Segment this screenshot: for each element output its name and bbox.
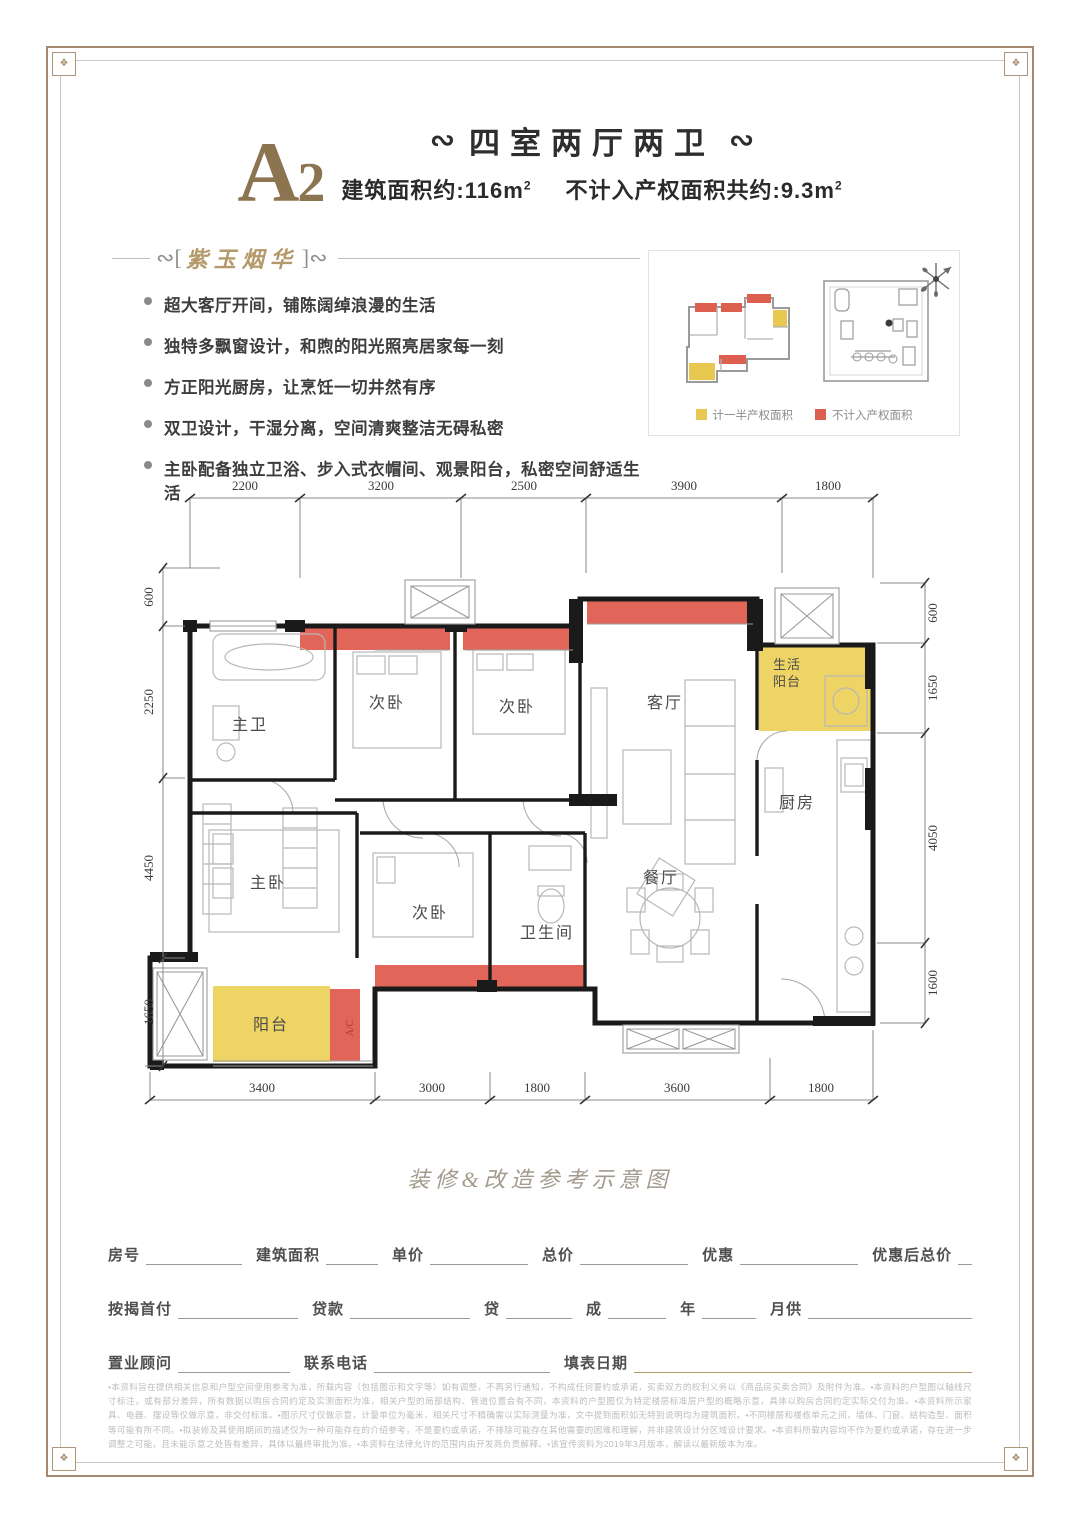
- fill-line: [580, 1249, 688, 1265]
- feature-item: 超大客厅开间，铺陈阔绰浪漫的生活: [164, 292, 640, 316]
- svg-text:3400: 3400: [249, 1080, 275, 1095]
- svg-text:卫生间: 卫生间: [520, 924, 574, 942]
- area-info: 建筑面积约:116m2不计入产权面积共约:9.3m2: [341, 173, 842, 205]
- fill-line: [740, 1249, 858, 1265]
- compass-icon: [917, 259, 955, 299]
- svg-text:次卧: 次卧: [412, 904, 448, 922]
- svg-text:1650: 1650: [141, 999, 156, 1025]
- field-label: 贷款: [312, 1298, 344, 1319]
- field-label: 填表日期: [564, 1352, 628, 1373]
- svg-text:3200: 3200: [368, 478, 394, 493]
- svg-text:1800: 1800: [808, 1080, 834, 1095]
- svg-text:600: 600: [141, 587, 156, 607]
- fill-line: [146, 1249, 242, 1265]
- page-title: ∾ 四室两厅两卫 ∾: [430, 118, 754, 163]
- fill-line: [374, 1357, 550, 1373]
- svg-text:次卧: 次卧: [369, 694, 405, 712]
- field-label: 优惠后总价: [872, 1244, 952, 1265]
- fill-line: [958, 1249, 972, 1265]
- field-label: 建筑面积: [256, 1244, 320, 1265]
- flyer-page: ❖ ❖ ❖ ❖ A2 ∾ 四室两厅两卫 ∾ 建筑面积约:116m2不计入产权面积…: [0, 0, 1080, 1523]
- legend-item-excluded-area: 不计入产权面积: [815, 407, 913, 423]
- features-header: ∾[ 紫玉烟华 ]∾: [112, 242, 640, 274]
- svg-text:客厅: 客厅: [647, 694, 683, 712]
- frame-corner-ornament: ❖: [1004, 52, 1028, 76]
- fill-line: [178, 1357, 290, 1373]
- svg-text:餐厅: 餐厅: [643, 869, 679, 887]
- swirl-ornament-icon: ∾: [430, 123, 455, 158]
- svg-text:1600: 1600: [925, 970, 940, 996]
- fill-line: [506, 1303, 572, 1319]
- svg-text:4050: 4050: [925, 825, 940, 851]
- field-label: 优惠: [702, 1244, 734, 1265]
- svg-text:A/C: A/C: [345, 1019, 356, 1036]
- field-label: 单价: [392, 1244, 424, 1265]
- svg-text:1800: 1800: [815, 478, 841, 493]
- legend: 计一半产权面积 不计入产权面积: [649, 407, 959, 423]
- svg-text:3600: 3600: [664, 1080, 690, 1095]
- yellow-swatch-icon: [696, 409, 707, 420]
- svg-text:2200: 2200: [232, 478, 258, 493]
- bullet-icon: [144, 338, 152, 346]
- floorplan: 主卫 次卧 次卧 客厅 生活 阳台 厨房 主卧 次卧 卫生间 餐厅 阳台 A/C: [125, 468, 955, 1128]
- field-label: 贷: [484, 1298, 500, 1319]
- fill-line: [702, 1303, 756, 1319]
- field-label: 月供: [770, 1298, 802, 1319]
- feature-item: 双卫设计，干湿分离，空间清爽整洁无碍私密: [164, 415, 640, 439]
- svg-text:2250: 2250: [141, 689, 156, 715]
- frame-corner-ornament: ❖: [1004, 1447, 1028, 1471]
- frame-corner-ornament: ❖: [52, 1447, 76, 1471]
- plan-code: A2: [237, 138, 323, 207]
- thumbnail-panel: 计一半产权面积 不计入产权面积: [648, 250, 960, 436]
- bullet-icon: [144, 420, 152, 428]
- bullet-icon: [144, 379, 152, 387]
- mini-floorplan: [675, 277, 805, 389]
- fill-line: [608, 1303, 666, 1319]
- svg-text:1800: 1800: [524, 1080, 550, 1095]
- svg-text:次卧: 次卧: [499, 698, 535, 716]
- swirl-ornament-icon: ∾: [729, 123, 754, 158]
- field-label: 成: [586, 1298, 602, 1319]
- frame-corner-ornament: ❖: [52, 52, 76, 76]
- field-label: 年: [680, 1298, 696, 1319]
- fill-line: [808, 1303, 972, 1319]
- svg-text:1650: 1650: [925, 675, 940, 701]
- fill-line: [430, 1249, 528, 1265]
- svg-text:3000: 3000: [419, 1080, 445, 1095]
- feature-item: 方正阳光厨房，让烹饪一切井然有序: [164, 374, 640, 398]
- floorplan-half-area-zones: [213, 645, 871, 1062]
- feature-item: 独特多飘窗设计，和煦的阳光照亮居家每一刻: [164, 333, 640, 357]
- fill-line: [178, 1303, 298, 1319]
- fill-line-gold: [634, 1357, 972, 1373]
- field-label: 房号: [108, 1244, 140, 1265]
- form-row-price: 房号 建筑面积 单价 总价 优惠 优惠后总价: [108, 1244, 972, 1265]
- svg-text:阳台: 阳台: [773, 674, 801, 689]
- field-label: 按揭首付: [108, 1298, 172, 1319]
- svg-text:阳台: 阳台: [253, 1016, 289, 1034]
- form-row-consultant: 置业顾问 联系电话 填表日期: [108, 1352, 972, 1373]
- field-label: 总价: [542, 1244, 574, 1265]
- svg-text:厨房: 厨房: [779, 794, 815, 812]
- field-label: 置业顾问: [108, 1352, 172, 1373]
- form-row-mortgage: 按揭首付 贷款 贷 成 年 月供: [108, 1298, 972, 1319]
- fill-line: [326, 1249, 378, 1265]
- legend-item-half-area: 计一半产权面积: [696, 407, 794, 423]
- plan-caption: 装修&改造参考示意图: [0, 1162, 1080, 1194]
- svg-text:3900: 3900: [671, 478, 697, 493]
- svg-text:600: 600: [925, 603, 940, 623]
- fill-line: [350, 1303, 470, 1319]
- svg-text:4450: 4450: [141, 855, 156, 881]
- header: A2 ∾ 四室两厅两卫 ∾ 建筑面积约:116m2不计入产权面积共约:9.3m2: [0, 118, 1080, 207]
- bullet-icon: [144, 297, 152, 305]
- svg-text:生活: 生活: [773, 657, 801, 672]
- disclaimer: •本资料旨在提供相关信息和户型空间使用参考为准，所载内容（包括图示和文字等）如有…: [108, 1380, 972, 1451]
- project-tagline: 紫玉烟华: [186, 242, 298, 274]
- field-label: 联系电话: [304, 1352, 368, 1373]
- svg-text:主卧: 主卧: [250, 874, 286, 892]
- svg-text:主卫: 主卫: [232, 716, 268, 734]
- red-swatch-icon: [815, 409, 826, 420]
- svg-text:2500: 2500: [511, 478, 537, 493]
